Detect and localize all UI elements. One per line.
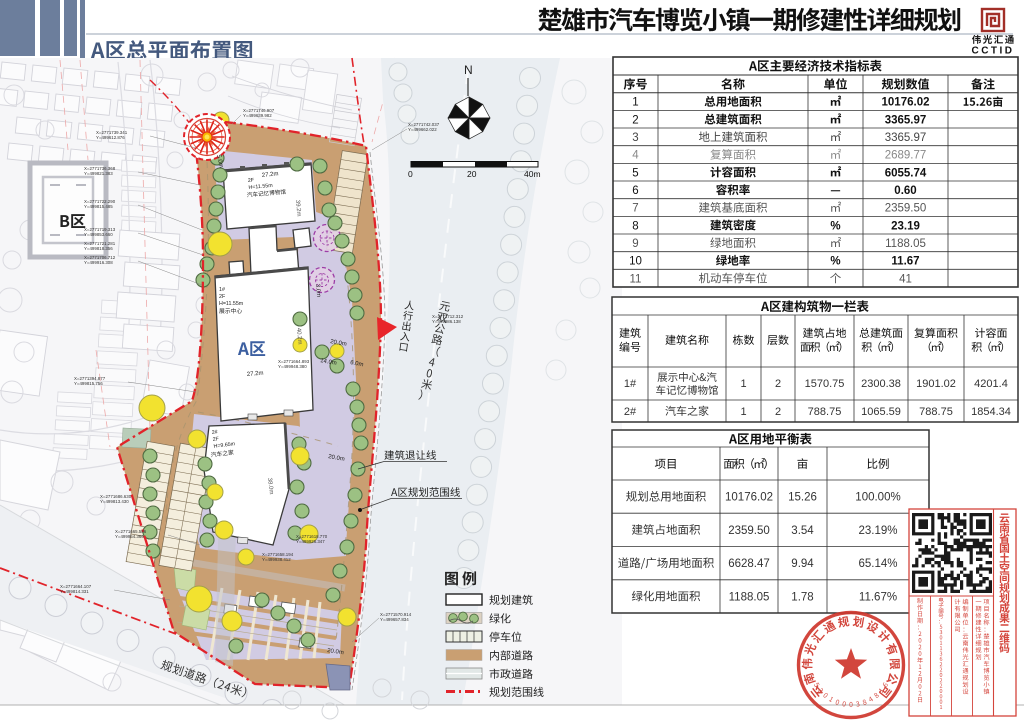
svg-text:H=11.55m: H=11.55m (219, 301, 244, 307)
svg-text:2689.77: 2689.77 (885, 150, 927, 162)
svg-text:788.75: 788.75 (808, 406, 842, 418)
svg-text:1854.34: 1854.34 (971, 406, 1011, 418)
svg-text:40m: 40m (524, 169, 541, 179)
svg-text:11.67: 11.67 (891, 256, 919, 268)
svg-text:Y=499814.331: Y=499814.331 (60, 589, 89, 594)
svg-text:Y=499916.308: Y=499916.308 (84, 260, 113, 265)
svg-text:1188.05: 1188.05 (729, 591, 770, 603)
svg-text:3365.97: 3365.97 (885, 114, 927, 126)
svg-text:Y=499639.982: Y=499639.982 (243, 113, 272, 118)
svg-text:3: 3 (632, 132, 638, 144)
svg-text:41: 41 (899, 273, 912, 285)
svg-text:Y=499926.347: Y=499926.347 (296, 539, 325, 544)
svg-text:3.54: 3.54 (791, 525, 814, 537)
svg-text:788.75: 788.75 (919, 406, 953, 418)
svg-text:2#: 2# (212, 429, 219, 436)
svg-text:0.60: 0.60 (894, 185, 916, 197)
svg-text:Y=499938.412: Y=499938.412 (262, 557, 291, 562)
svg-text:2: 2 (632, 114, 638, 126)
svg-text:10176.02: 10176.02 (725, 492, 773, 504)
svg-text:1: 1 (740, 406, 746, 418)
svg-text:23.19: 23.19 (891, 220, 920, 232)
svg-text:Y=499815.756: Y=499815.756 (74, 381, 103, 386)
svg-text:2359.50: 2359.50 (728, 525, 770, 537)
svg-text:3.0m: 3.0m (314, 284, 321, 298)
svg-text:11.67%: 11.67% (859, 591, 897, 603)
svg-text:1#: 1# (624, 378, 637, 390)
svg-text:15.26: 15.26 (788, 492, 817, 504)
svg-text:Y=499662.022: Y=499662.022 (408, 127, 437, 132)
svg-text:Y=499821.383: Y=499821.383 (84, 171, 113, 176)
svg-text:1.78: 1.78 (791, 591, 813, 603)
svg-text:4201.4: 4201.4 (974, 378, 1008, 390)
svg-text:4: 4 (632, 150, 639, 162)
svg-text:9.94: 9.94 (791, 558, 814, 570)
svg-text:2: 2 (775, 406, 781, 418)
svg-text:Y=499948.380: Y=499948.380 (278, 364, 307, 369)
svg-text:1: 1 (740, 378, 746, 390)
svg-text:1901.02: 1901.02 (916, 378, 956, 390)
svg-text:8: 8 (632, 220, 638, 232)
svg-text:6628.47: 6628.47 (728, 558, 770, 570)
svg-text:Y=499657.834: Y=499657.834 (380, 617, 409, 622)
svg-text:Y=499813.430: Y=499813.430 (100, 499, 129, 504)
svg-text:1188.05: 1188.05 (885, 238, 926, 250)
svg-text:1#: 1# (219, 287, 225, 293)
svg-text:2300.38: 2300.38 (861, 378, 901, 390)
svg-text:9: 9 (632, 238, 638, 250)
svg-text:%: % (830, 256, 840, 268)
svg-text:6: 6 (632, 185, 638, 197)
svg-text:10: 10 (629, 256, 642, 268)
svg-text:2: 2 (775, 378, 781, 390)
svg-text:20: 20 (467, 169, 477, 179)
svg-text:7: 7 (632, 203, 638, 215)
svg-text:%: % (830, 220, 840, 232)
svg-text:1570.75: 1570.75 (805, 378, 845, 390)
svg-text:Y=499986.138: Y=499986.138 (432, 319, 461, 324)
svg-text:N: N (464, 63, 473, 77)
svg-text:23.19%: 23.19% (858, 525, 897, 537)
svg-text:CCTID: CCTID (971, 46, 1014, 57)
svg-text:6055.74: 6055.74 (885, 167, 927, 179)
svg-text:3365.97: 3365.97 (885, 132, 927, 144)
svg-text:2F: 2F (219, 294, 226, 300)
svg-text:100.00%: 100.00% (855, 492, 900, 504)
svg-text:10176.02: 10176.02 (882, 97, 930, 109)
svg-text:Y=499818.356: Y=499818.356 (84, 246, 113, 251)
svg-text:1: 1 (632, 97, 638, 109)
svg-text:Y=499815.485: Y=499815.485 (84, 204, 113, 209)
svg-text:2#: 2# (624, 406, 637, 418)
svg-text:65.14%: 65.14% (858, 558, 897, 570)
svg-text:Y=499612.876: Y=499612.876 (96, 135, 125, 140)
svg-text:11: 11 (630, 273, 642, 285)
svg-text:1065.59: 1065.59 (861, 406, 901, 418)
svg-text:Y=499954.366: Y=499954.366 (115, 534, 144, 539)
svg-text:0: 0 (408, 169, 413, 179)
svg-text:5: 5 (632, 167, 638, 179)
svg-text:Y=499853.660: Y=499853.660 (84, 232, 113, 237)
svg-text:2359.50: 2359.50 (885, 203, 927, 215)
